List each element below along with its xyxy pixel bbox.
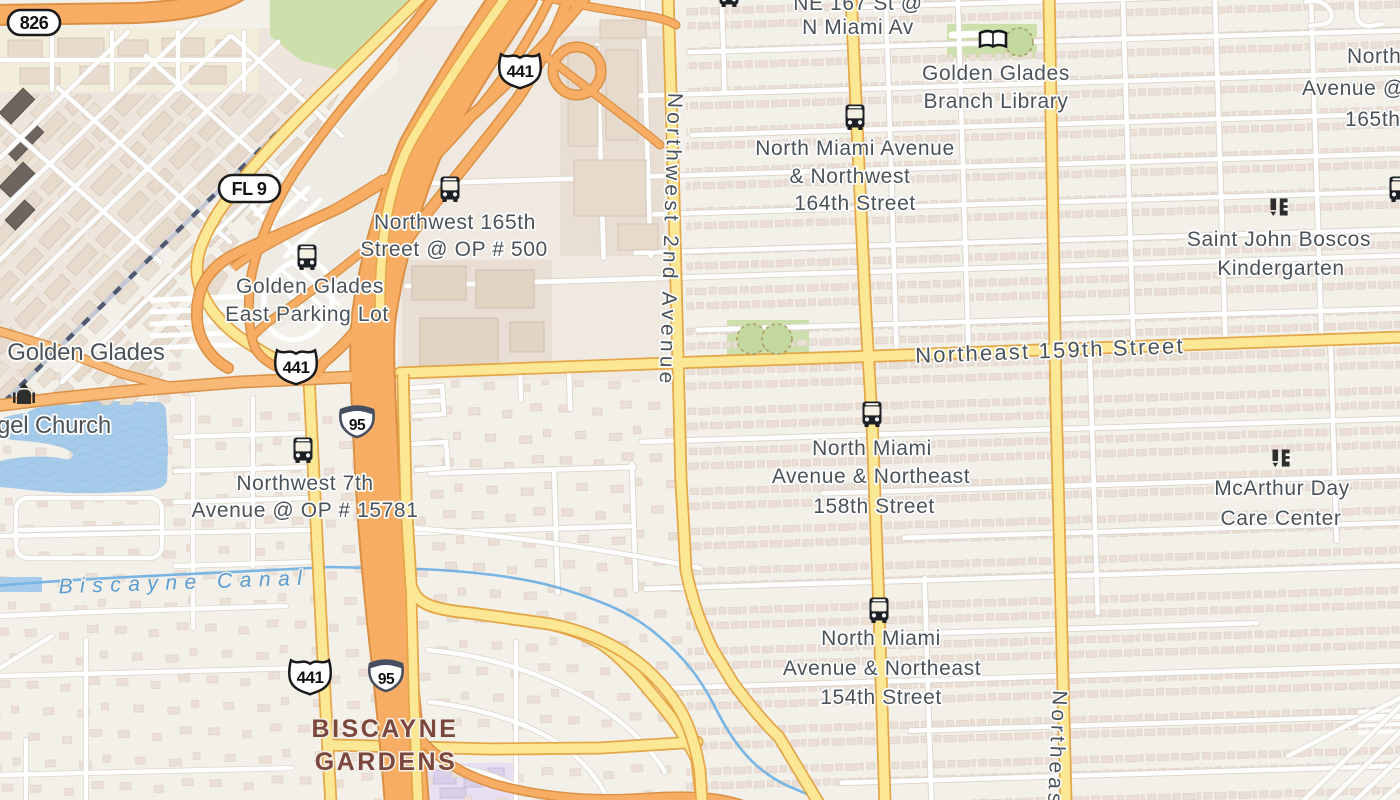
svg-text:BISCAYNE: BISCAYNE <box>312 715 459 743</box>
svg-text:Avenue @ Op: Avenue @ Op <box>1302 77 1400 100</box>
svg-text:Northwest 7th: Northwest 7th <box>236 472 373 495</box>
svg-text:826: 826 <box>20 13 49 33</box>
svg-text:East Parking Lot: East Parking Lot <box>225 303 389 326</box>
svg-text:158th Street: 158th Street <box>813 495 935 518</box>
svg-text:North Miami: North Miami <box>812 437 932 460</box>
svg-text:Kindergarten: Kindergarten <box>1217 257 1344 280</box>
svg-text:& Northwest: & Northwest <box>790 165 911 188</box>
svg-text:Northwest 165th: Northwest 165th <box>374 211 536 234</box>
svg-text:441: 441 <box>507 62 534 81</box>
svg-text:441: 441 <box>297 668 324 687</box>
svg-text:gel Church: gel Church <box>0 412 111 439</box>
svg-text:North Miami Avenue: North Miami Avenue <box>755 137 955 160</box>
svg-text:95: 95 <box>378 671 395 688</box>
svg-text:North Miami: North Miami <box>821 627 941 650</box>
svg-text:Golden Glades: Golden Glades <box>922 62 1070 85</box>
svg-text:Northeast: Northeast <box>1347 45 1400 68</box>
svg-text:Golden Glades: Golden Glades <box>236 275 384 298</box>
svg-text:Care Center: Care Center <box>1221 507 1342 530</box>
svg-text:95: 95 <box>349 417 366 434</box>
svg-text:165th: 165th <box>1345 108 1400 131</box>
svg-text:441: 441 <box>283 358 310 377</box>
svg-text:Avenue & Northeast: Avenue & Northeast <box>783 657 981 680</box>
svg-text:Golden Glades: Golden Glades <box>7 339 165 366</box>
svg-text:Street @ OP # 500: Street @ OP # 500 <box>360 238 548 261</box>
svg-text:NE 167 St @: NE 167 St @ <box>793 0 922 15</box>
svg-text:FL 9: FL 9 <box>232 179 267 199</box>
svg-text:GARDENS: GARDENS <box>315 748 458 776</box>
svg-text:Branch Library: Branch Library <box>924 90 1069 113</box>
svg-text:McArthur Day: McArthur Day <box>1214 477 1350 500</box>
svg-text:164th Street: 164th Street <box>794 192 916 215</box>
svg-text:Avenue & Northeast: Avenue & Northeast <box>772 465 970 488</box>
svg-text:Avenue @ OP # 15781: Avenue @ OP # 15781 <box>192 499 419 522</box>
svg-text:N Miami Av: N Miami Av <box>802 16 914 39</box>
svg-text:154th Street: 154th Street <box>820 686 942 709</box>
svg-text:Saint John Boscos: Saint John Boscos <box>1187 228 1371 251</box>
